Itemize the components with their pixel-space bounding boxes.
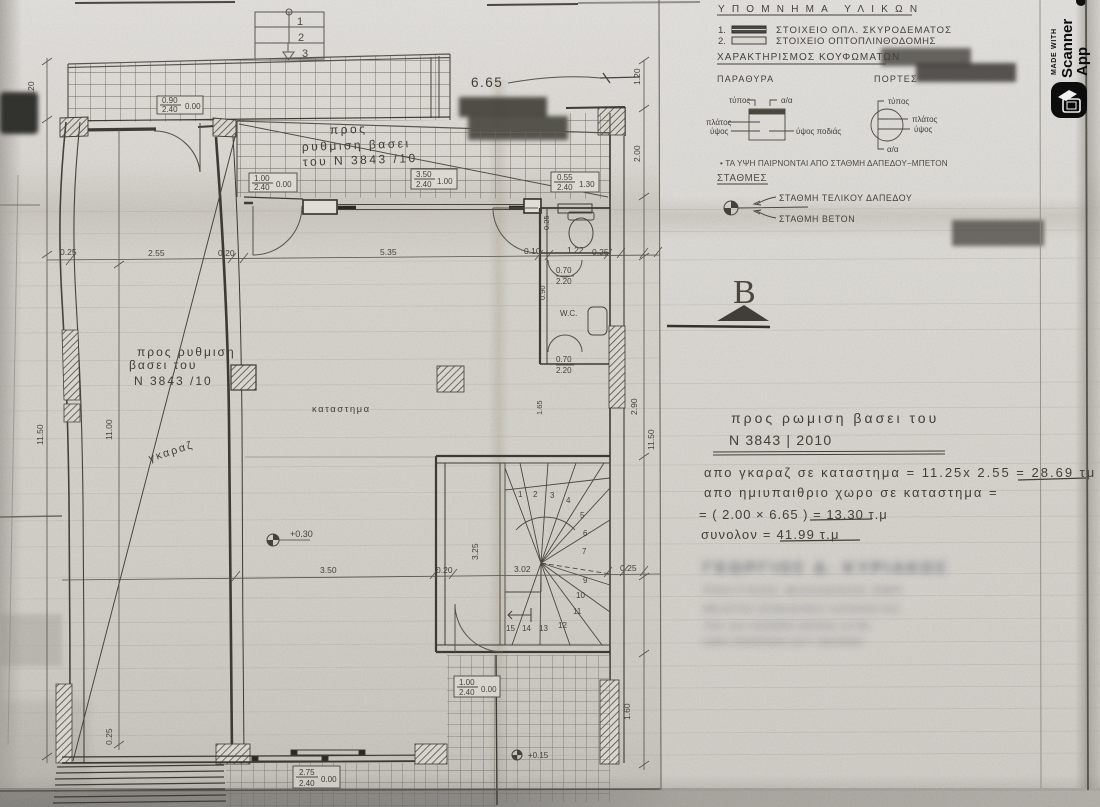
svg-text:πλάτος: πλάτος (706, 118, 732, 127)
svg-text:ΣΤΑΘΜΗ ΒΕΤΟΝ: ΣΤΑΘΜΗ ΒΕΤΟΝ (779, 214, 855, 224)
svg-text:συνολον = 41.99 τ.μ: συνολον = 41.99 τ.μ (701, 527, 840, 542)
svg-text:ΧΑΡΑΚΤΗΡΙΣΜΟΣ ΚΟΥΦΩΜΑΤΩΝ: ΧΑΡΑΚΤΗΡΙΣΜΟΣ ΚΟΥΦΩΜΑΤΩΝ (717, 52, 900, 63)
svg-text:1.20: 1.20 (26, 81, 36, 98)
svg-text:1.: 1. (718, 25, 726, 36)
svg-text:• ΤΑ ΥΨΗ ΠΑΙΡΝΟΝΤΑΙ ΑΠΟ ΣΤΑΘΜ: • ΤΑ ΥΨΗ ΠΑΙΡΝΟΝΤΑΙ ΑΠΟ ΣΤΑΘΜΗ ΔΑΠΕΔΟΥ−Μ… (720, 159, 948, 168)
svg-text:0.00: 0.00 (481, 685, 497, 694)
svg-text:2.40: 2.40 (459, 688, 475, 697)
svg-text:ΜΕΛΕΤΕΣ ΕΠΙΒΛΕΨΕΙΣ ΚΑΤΑΣΚΕΥΕΣ: ΜΕΛΕΤΕΣ ΕΠΙΒΛΕΨΕΙΣ ΚΑΤΑΣΚΕΥΕΣ (703, 604, 900, 615)
svg-text:α/α: α/α (781, 96, 793, 105)
svg-text:0.20: 0.20 (436, 565, 453, 575)
svg-text:0.00: 0.00 (321, 775, 337, 784)
svg-text:1.22: 1.22 (567, 245, 584, 255)
svg-text:15: 15 (506, 624, 515, 633)
svg-text:καταστημα: καταστημα (312, 404, 371, 415)
svg-text:0.70: 0.70 (556, 266, 572, 275)
svg-text:11.00: 11.00 (104, 419, 114, 440)
svg-text:3.50: 3.50 (416, 170, 432, 179)
svg-text:1: 1 (297, 16, 303, 28)
svg-text:0.25: 0.25 (104, 728, 114, 745)
svg-text:2: 2 (298, 32, 304, 44)
svg-text:3: 3 (550, 491, 555, 500)
svg-text:5.35: 5.35 (380, 247, 397, 257)
svg-text:2.90: 2.90 (629, 398, 639, 415)
svg-text:Ν 3843 | 2010: Ν 3843 | 2010 (729, 432, 832, 448)
svg-text:3.25: 3.25 (470, 543, 480, 560)
svg-text:2.40: 2.40 (162, 105, 178, 114)
svg-text:6.65: 6.65 (471, 75, 503, 90)
svg-text:2.00: 2.00 (632, 145, 642, 162)
svg-text:3: 3 (302, 48, 308, 60)
svg-text:2.20: 2.20 (556, 366, 572, 375)
svg-text:ΣΤΟΙΧΕΙΟ ΟΠΤΟΠΛΙΝΘΟΔΟΜΗΣ: ΣΤΟΙΧΕΙΟ ΟΠΤΟΠΛΙΝΘΟΔΟΜΗΣ (776, 36, 936, 47)
svg-text:0.20: 0.20 (218, 248, 235, 258)
svg-text:2.40: 2.40 (416, 180, 432, 189)
svg-text:1.00: 1.00 (437, 177, 453, 186)
svg-text:1.30: 1.30 (579, 180, 595, 189)
svg-text:2.75: 2.75 (299, 768, 315, 777)
svg-text:ΠΟΛΙΤΙΚΟΣ ΜΗΧΑΝΙΚΟΣ ΕΜΠ: ΠΟΛΙΤΙΚΟΣ ΜΗΧΑΝΙΚΟΣ ΕΜΠ (703, 585, 904, 597)
svg-text:ΠΟΡΤΕΣ: ΠΟΡΤΕΣ (874, 74, 918, 84)
svg-text:απο γκαραζ σε καταστημα = 11: απο γκαραζ σε καταστημα = 11.25x 2.55 = … (704, 465, 1096, 480)
svg-text:12: 12 (558, 621, 567, 630)
svg-text:+0.30: +0.30 (290, 529, 313, 539)
svg-text:6: 6 (583, 529, 588, 538)
svg-text:11.50: 11.50 (646, 429, 656, 450)
svg-text:10: 10 (576, 591, 585, 600)
svg-text:11: 11 (573, 607, 582, 616)
svg-text:2: 2 (533, 490, 538, 499)
svg-text:5: 5 (580, 511, 585, 520)
svg-text:προς ρωμιση βασει του: προς ρωμιση βασει του (731, 410, 939, 426)
svg-text:προς: προς (330, 122, 368, 137)
svg-text:2.20: 2.20 (556, 277, 572, 286)
svg-text:πλάτος: πλάτος (912, 115, 938, 124)
svg-text:9: 9 (583, 576, 588, 585)
svg-text:2.: 2. (718, 36, 726, 47)
svg-text:0.00: 0.00 (185, 102, 201, 111)
svg-text:0.25: 0.25 (620, 563, 637, 573)
svg-text:0.25: 0.25 (542, 215, 551, 230)
svg-text:ΣΤΟΙΧΕΙΟ ΟΠΛ. ΣΚΥΡΟΔΕΜΑΤΟΣ: ΣΤΟΙΧΕΙΟ ΟΠΛ. ΣΚΥΡΟΔΕΜΑΤΟΣ (776, 25, 952, 36)
svg-text:1.20: 1.20 (632, 68, 642, 85)
svg-text:W.C.: W.C. (560, 309, 577, 318)
svg-text:14: 14 (522, 624, 531, 633)
svg-text:0.25: 0.25 (592, 247, 609, 257)
svg-text:0.55: 0.55 (557, 173, 573, 182)
svg-text:1.00: 1.00 (254, 174, 270, 183)
svg-text:προς ρυθμιση: προς ρυθμιση (137, 345, 236, 359)
svg-text:απο ημιυπαιθριο χωρο σε κα: απο ημιυπαιθριο χωρο σε καταστημα = (704, 485, 999, 500)
svg-text:MADE WITH: MADE WITH (1051, 28, 1058, 75)
svg-text:2.40: 2.40 (254, 183, 270, 192)
svg-text:ΓΕΩΡΓΙΟΣ Δ. ΚΥΡΙΑΚΟΣ: ΓΕΩΡΓΙΟΣ Δ. ΚΥΡΙΑΚΟΣ (703, 560, 949, 577)
svg-text:0.25: 0.25 (60, 247, 77, 257)
svg-text:ύψος: ύψος (914, 125, 933, 134)
svg-text:ΣΤΑΘΜΗ ΤΕΛΙΚΟΥ ΔΑΠΕΔΟΥ: ΣΤΑΘΜΗ ΤΕΛΙΚΟΥ ΔΑΠΕΔΟΥ (779, 193, 912, 203)
svg-text:τύπος: τύπος (729, 96, 750, 105)
svg-text:7: 7 (582, 547, 587, 556)
svg-text:2.55: 2.55 (148, 248, 165, 258)
svg-text:Ν 3843 /10: Ν 3843 /10 (134, 374, 213, 388)
svg-text:0.00: 0.00 (276, 180, 292, 189)
svg-text:1.65: 1.65 (535, 400, 544, 415)
svg-text:+0.15: +0.15 (528, 751, 549, 760)
svg-text:App: App (1074, 47, 1091, 76)
svg-text:1: 1 (518, 490, 523, 499)
svg-text:0.10: 0.10 (524, 246, 541, 256)
svg-text:1.60: 1.60 (622, 703, 632, 720)
svg-text:4: 4 (566, 496, 571, 505)
svg-text:ΥΠΟΜΝΗΜΑ ΥΛΙΚΩΝ: ΥΠΟΜΝΗΜΑ ΥΛΙΚΩΝ (718, 4, 924, 15)
svg-text:3.50: 3.50 (320, 565, 337, 575)
svg-text:3.02: 3.02 (514, 564, 531, 574)
svg-text:1.00: 1.00 (459, 678, 475, 687)
svg-text:2.40: 2.40 (299, 779, 315, 788)
svg-text:ΑΦΜ 099999999 ΔΟΥ ΑΘΗΝΩΝ: ΑΦΜ 099999999 ΔΟΥ ΑΘΗΝΩΝ (703, 637, 864, 648)
svg-text:0.90: 0.90 (162, 96, 178, 105)
svg-text:ΠΑΡΑΘΥΡΑ: ΠΑΡΑΘΥΡΑ (717, 74, 774, 84)
svg-text:τύπος: τύπος (888, 97, 909, 106)
svg-text:ΤΗΛ 210 9339999 ΑΘΗΝΑ 11745: ΤΗΛ 210 9339999 ΑΘΗΝΑ 11745 (703, 621, 870, 632)
svg-text:11.50: 11.50 (35, 424, 45, 445)
svg-text:ύψος ποδιάς: ύψος ποδιάς (796, 127, 841, 136)
svg-text:α/α: α/α (887, 145, 899, 154)
svg-text:0.70: 0.70 (556, 355, 572, 364)
svg-text:βασει του: βασει του (129, 358, 197, 372)
svg-text:ύψος: ύψος (710, 127, 729, 136)
svg-text:13: 13 (539, 624, 548, 633)
svg-text:ΣΤΑΘΜΕΣ: ΣΤΑΘΜΕΣ (717, 173, 767, 184)
svg-text:0.90: 0.90 (538, 285, 547, 300)
svg-text:2.40: 2.40 (557, 183, 573, 192)
